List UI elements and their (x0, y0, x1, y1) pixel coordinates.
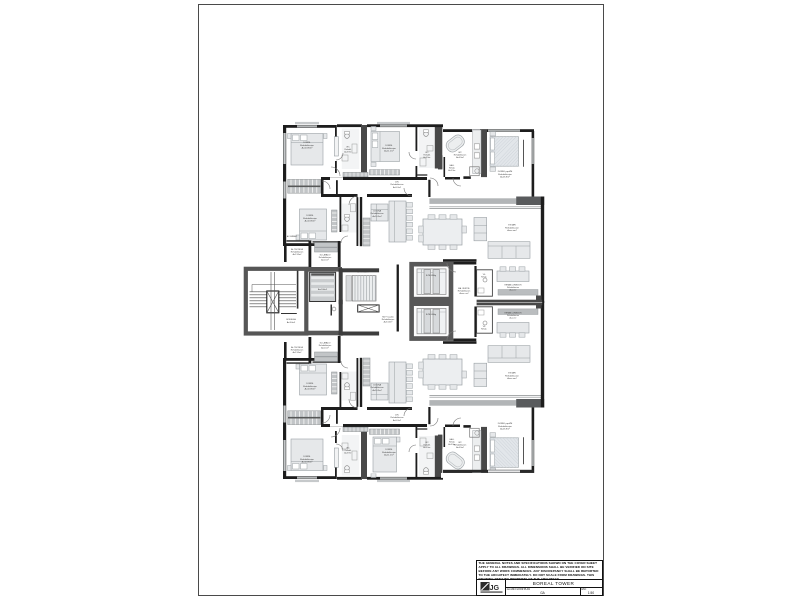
svg-text:JG: JG (489, 583, 499, 592)
